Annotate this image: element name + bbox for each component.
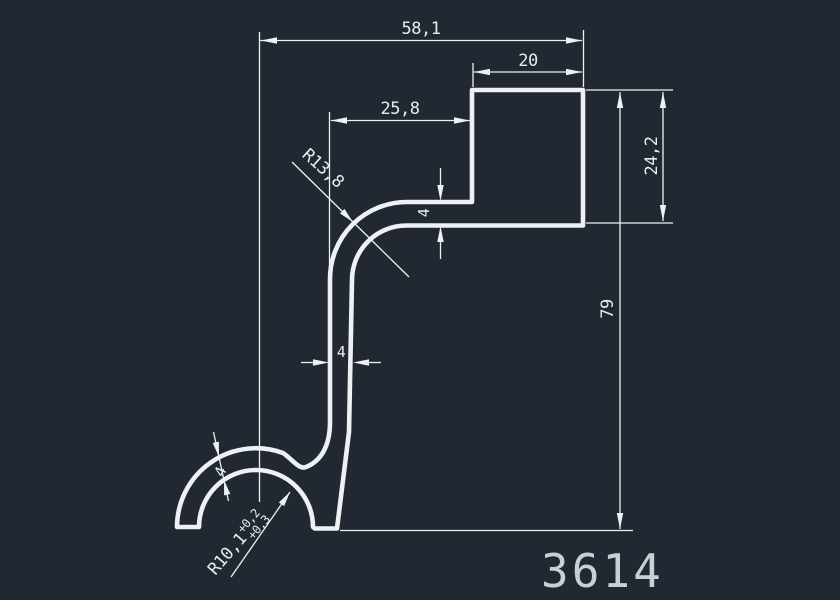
arrow-left-icon: [353, 359, 369, 365]
radius-label: R13,8: [298, 145, 348, 193]
cad-drawing: 58,1 20 25,8 24,2 79 4: [0, 0, 840, 600]
dim-value: 79: [598, 299, 618, 319]
arrow-down-icon: [437, 185, 443, 201]
arrow-up-right-icon: [279, 492, 290, 506]
arrow-right-icon: [566, 69, 582, 75]
arrow-right-icon: [313, 359, 329, 365]
dim-total-height: 79: [340, 92, 633, 531]
part-number: 3614: [541, 544, 664, 598]
arrow-left-icon: [474, 69, 490, 75]
arrow-down-icon: [617, 513, 623, 529]
arrow-up-icon: [660, 92, 666, 108]
dim-value: 25,8: [381, 99, 420, 119]
dim-value: 24,2: [642, 137, 662, 176]
arrow-right-icon: [566, 37, 582, 43]
arrow-up-icon: [437, 226, 443, 242]
arrow-up-icon: [617, 92, 623, 108]
arrow-down-icon: [660, 205, 666, 221]
dim-value: 4: [337, 343, 346, 361]
dim-fillet-radius: R13,8: [292, 145, 409, 277]
dim-hook-radius: R10,1 +0,2 +0,3: [202, 492, 290, 581]
dim-arm-offset: 25,8: [330, 99, 471, 277]
radius-label: R10,1: [204, 529, 251, 579]
arrow-right-icon: [454, 117, 470, 123]
arrow-down-right-icon: [213, 442, 219, 457]
dim-top-block-height: 24,2: [586, 90, 673, 223]
dim-value: 20: [518, 51, 538, 71]
dim-value: 58,1: [402, 19, 441, 39]
cad-viewport: 58,1 20 25,8 24,2 79 4: [0, 0, 840, 600]
dim-stem-thickness: 4: [301, 343, 381, 366]
dim-top-block-width: 20: [473, 51, 582, 87]
dim-arm-thickness: 4: [415, 168, 444, 259]
arrow-left-icon: [331, 117, 347, 123]
arrow-up-left-icon: [224, 480, 230, 495]
profile-outline: [177, 90, 583, 529]
arrow-left-icon: [261, 37, 277, 43]
dim-value: 4: [415, 208, 433, 217]
